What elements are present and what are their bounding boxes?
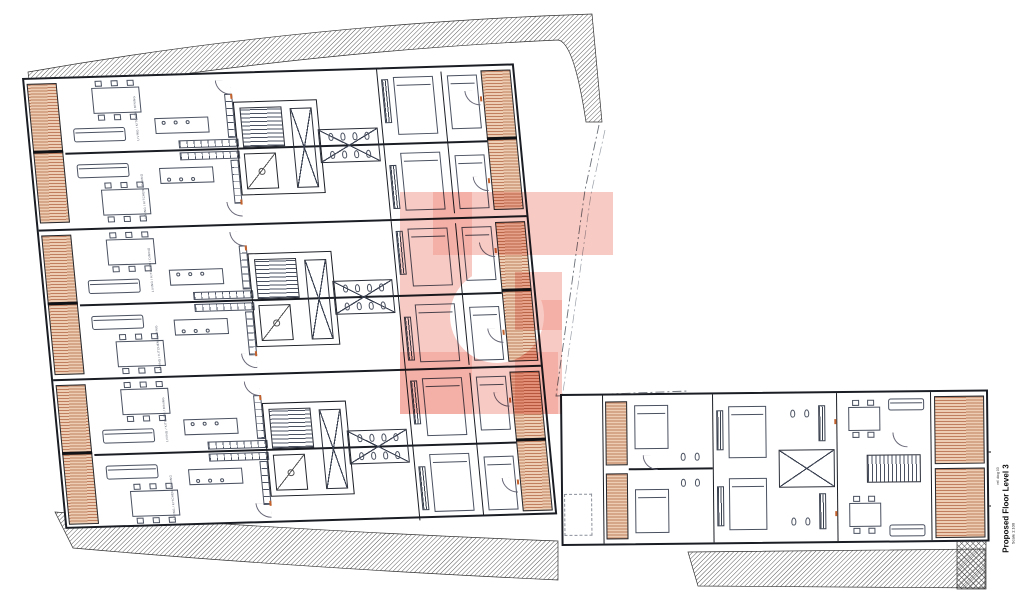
title-block: Proposed Floor Level 3 Scale 1:100 ref. … bbox=[0, 0, 1024, 605]
scale-label: Scale 1:100 bbox=[1011, 519, 1016, 549]
drawing-sheet: LIVING / KITCHEN / DINING LIVING / KITCH… bbox=[0, 0, 1024, 605]
plan-title: Proposed Floor Level 3 bbox=[1002, 461, 1011, 557]
drawing-ref-label: ref. dwg 03 bbox=[996, 462, 1000, 490]
